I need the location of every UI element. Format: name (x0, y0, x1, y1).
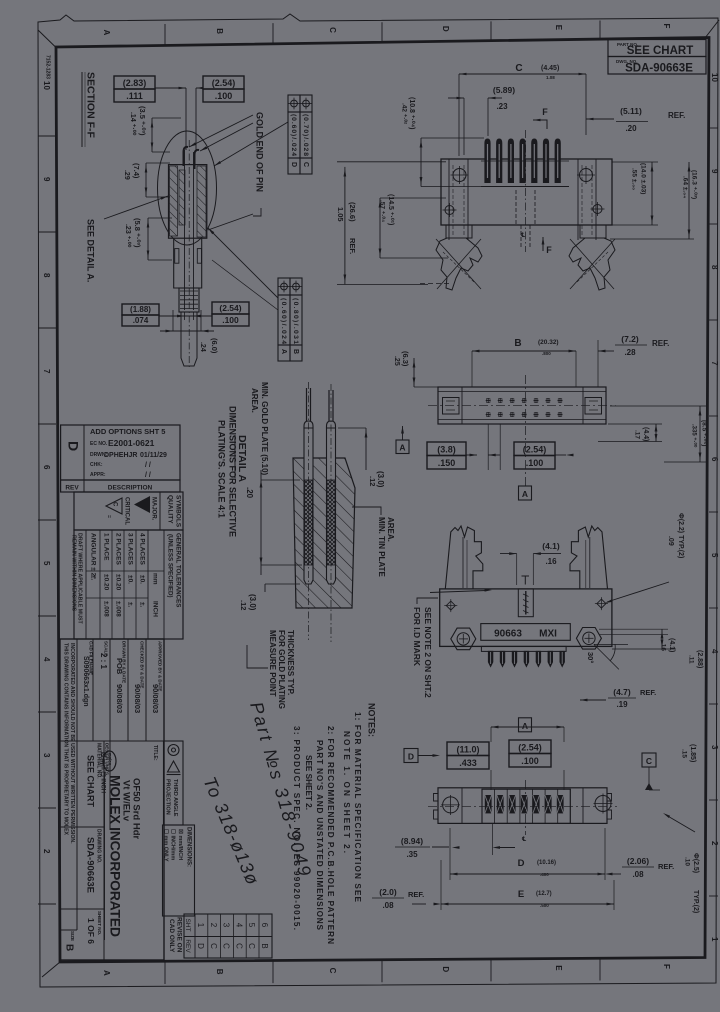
svg-text:.111: .111 (126, 91, 143, 101)
svg-text:D: D (196, 943, 205, 949)
svg-text:(0.70)/.028: (0.70)/.028 (302, 114, 309, 156)
svg-text:1 PLACE: 1 PLACE (102, 533, 109, 561)
svg-text:EC NO.: EC NO. (90, 441, 108, 447)
svg-text:±0.20: ±0.20 (102, 574, 109, 591)
svg-text:(3.5 ⁺·⁰³): (3.5 ⁺·⁰³) (138, 106, 147, 136)
svg-text:B: B (260, 943, 269, 948)
svg-text:MIN. TIN PLATE: MIN. TIN PLATE (377, 517, 386, 578)
svg-text:4: 4 (710, 649, 719, 654)
svg-text:QUALITY: QUALITY (166, 495, 173, 524)
svg-text:C: C (209, 943, 218, 949)
svg-text:REMAIN WITHIN DIMENSIONS: REMAIN WITHIN DIMENSIONS (71, 535, 77, 612)
svg-text:±.008: ±.008 (114, 601, 121, 617)
svg-text:7152-1283: 7152-1283 (45, 55, 51, 79)
svg-text:C: C (302, 162, 309, 167)
svg-text:1: FOR MATERIAL SPECIFICATION: 1: FOR MATERIAL SPECIFICATION SEE (353, 712, 362, 903)
svg-text:SDA-90663E: SDA-90663E (625, 63, 693, 75)
svg-text:SEE SHEET 2.: SEE SHEET 2. (304, 755, 313, 810)
svg-text:B: B (215, 28, 224, 34)
svg-text:POB: POB (115, 658, 124, 675)
svg-text:MEASURE POINT: MEASURE POINT (268, 630, 277, 697)
svg-text:REF.: REF. (640, 688, 656, 697)
svg-text:D: D (408, 752, 414, 762)
svg-text:C: C (646, 756, 652, 766)
svg-text:4: 4 (234, 923, 243, 928)
svg-text:2: 2 (209, 923, 218, 928)
svg-text:MOLEX INCORPORATED: MOLEX INCORPORATED (108, 775, 124, 937)
svg-text:6: 6 (710, 457, 719, 462)
svg-text:THICKNESS TYP.: THICKNESS TYP. (286, 630, 295, 695)
svg-text:.23: .23 (496, 102, 508, 111)
svg-text:(2.0): (2.0) (379, 887, 397, 897)
svg-text:REV: REV (184, 939, 191, 953)
svg-text:PART NO'S AND UNSTATED DIMENSI: PART NO'S AND UNSTATED DIMENSIONS (315, 740, 324, 931)
svg-text:(20.32): (20.32) (538, 339, 559, 346)
svg-text:DESCRIPTION: DESCRIPTION (108, 485, 153, 492)
svg-text:AREA.: AREA. (250, 388, 259, 413)
svg-text:8: 8 (42, 273, 51, 278)
svg-text:.12: .12 (368, 476, 377, 486)
svg-text:(8.94): (8.94) (401, 836, 423, 846)
svg-text:THIRD ANGLE: THIRD ANGLE (172, 779, 178, 817)
svg-text:MXΙ: MXΙ (539, 629, 557, 640)
svg-text:6: 6 (260, 923, 269, 928)
svg-text:☒ mm/INCH: ☒ mm/INCH (177, 829, 184, 860)
svg-text:±0.: ±0. (126, 575, 133, 584)
svg-text:B: B (514, 338, 521, 349)
svg-text:SEE DETAIL A.: SEE DETAIL A. (86, 219, 96, 282)
svg-text:.100: .100 (222, 315, 239, 325)
svg-text:NOTES:: NOTES: (367, 703, 377, 737)
svg-text:/ /: / / (145, 472, 151, 479)
svg-text:C: C (515, 63, 522, 74)
svg-text:1 OF 6: 1 OF 6 (86, 918, 96, 944)
svg-text:.09: .09 (667, 536, 674, 546)
svg-text:FOR I.D MARK: FOR I.D MARK (412, 607, 422, 667)
svg-text:C: C (111, 502, 117, 507)
svg-text:.16: .16 (545, 557, 557, 566)
svg-text:ANGULAR ± 2°: ANGULAR ± 2° (89, 533, 97, 579)
svg-text:SHT: SHT (184, 919, 191, 932)
svg-text:GOLD END OF PIN: GOLD END OF PIN (255, 112, 265, 192)
svg-text:3: 3 (42, 753, 51, 758)
svg-text:(3.8): (3.8) (437, 444, 456, 454)
svg-text:3 PLACES: 3 PLACES (126, 533, 133, 565)
svg-text:2: 2 (710, 841, 719, 846)
svg-text:☐ mm ONLY: ☐ mm ONLY (163, 829, 170, 862)
svg-text:APPR:: APPR: (90, 472, 106, 478)
svg-text:SDA-90663E: SDA-90663E (85, 837, 96, 893)
svg-text:(4.7): (4.7) (613, 687, 631, 697)
svg-text:3: 3 (222, 923, 231, 928)
svg-text:A: A (522, 721, 528, 731)
svg-text:Φ(2.2) TYP.(2): Φ(2.2) TYP.(2) (677, 513, 684, 558)
svg-text:4 PLACES: 4 PLACES (138, 533, 145, 565)
svg-text:REF.: REF. (408, 890, 424, 899)
svg-text:(4.4): (4.4) (642, 427, 649, 441)
svg-text:(26.6): (26.6) (348, 202, 357, 222)
svg-text:C: C (328, 968, 337, 974)
svg-text:ADD OPTIONS SHT 5: ADD OPTIONS SHT 5 (90, 427, 165, 436)
svg-text:10: 10 (42, 81, 51, 90)
svg-text:2 PLACES: 2 PLACES (114, 533, 121, 565)
svg-text:SHEET NO.: SHEET NO. (97, 911, 102, 935)
svg-text:(7.4): (7.4) (132, 163, 141, 179)
svg-text:(5.8 ⁺·⁰³): (5.8 ⁺·⁰³) (133, 218, 142, 248)
svg-text:mm: mm (151, 573, 158, 585)
svg-text:REF.: REF. (348, 238, 357, 254)
svg-text:A: A (102, 30, 111, 36)
svg-text:D: D (518, 858, 525, 869)
svg-text:.42 ⁺·⁰²: .42 ⁺·⁰² (400, 103, 408, 125)
svg-text:TYP.(2): TYP.(2) (692, 890, 699, 913)
svg-text:CHK:: CHK: (90, 462, 103, 468)
svg-text:THIS DRAWING CONTAINS INFORMAT: THIS DRAWING CONTAINS INFORMATION THAT I… (63, 643, 69, 836)
svg-text:PLATING'S. SCALE 4:1: PLATING'S. SCALE 4:1 (217, 420, 227, 518)
svg-text:PROJECTION: PROJECTION (165, 779, 171, 815)
svg-text:90/08/03: 90/08/03 (133, 684, 142, 713)
svg-text:Φ(2.5): Φ(2.5) (692, 853, 699, 873)
svg-text:6: 6 (42, 465, 51, 470)
svg-text:30°: 30° (586, 652, 595, 663)
svg-text:A: A (280, 349, 287, 354)
svg-text:1.08: 1.08 (546, 75, 555, 80)
svg-text:8: 8 (710, 265, 719, 270)
svg-text:F: F (542, 107, 548, 117)
svg-text:CAD ONLY: CAD ONLY (168, 919, 175, 953)
svg-text:9: 9 (42, 177, 51, 182)
svg-text:A: A (102, 970, 111, 976)
svg-text:90/08/03: 90/08/03 (151, 684, 160, 713)
svg-text:(4.1): (4.1) (542, 541, 560, 551)
svg-text:SECTION F-F: SECTION F-F (84, 72, 96, 138)
svg-text:NOTE 1. ON SHEET 2.: NOTE 1. ON SHEET 2. (342, 731, 351, 853)
svg-text:molex: molex (107, 753, 112, 766)
svg-text:.15: .15 (680, 749, 687, 758)
svg-text:SYMBOLS: SYMBOLS (174, 495, 181, 528)
svg-text:(5.11): (5.11) (620, 106, 642, 116)
svg-text:.17: .17 (633, 430, 640, 439)
svg-text:/ /: / / (145, 462, 151, 469)
svg-text:5: 5 (247, 923, 256, 928)
svg-text:±.: ±. (138, 602, 145, 608)
svg-text:.335 ⁺·⁰⁰: .335 ⁺·⁰⁰ (690, 424, 697, 448)
svg-text:.55 ±.₀₀: .55 ±.₀₀ (630, 168, 637, 190)
svg-text:A: A (399, 443, 405, 453)
svg-text:.64 ±.₀₄: .64 ±.₀₄ (681, 176, 688, 198)
svg-text:10: 10 (710, 73, 719, 82)
svg-text:(2.54): (2.54) (212, 78, 236, 88)
svg-text:C: C (222, 943, 231, 949)
svg-text:F: F (546, 245, 552, 255)
svg-text:1: 1 (196, 923, 205, 928)
svg-text:REF.: REF. (658, 862, 674, 871)
svg-text:.12: .12 (239, 600, 248, 610)
svg-text:INCORPORATED AND SHOULD NOT BE: INCORPORATED AND SHOULD NOT BE USED WITH… (69, 643, 75, 844)
svg-text:.20: .20 (245, 487, 254, 499)
svg-text:DRAWING NO.: DRAWING NO. (96, 829, 102, 864)
svg-text:E: E (554, 965, 563, 971)
svg-text:±.: ±. (126, 602, 133, 608)
svg-text:.28: .28 (624, 348, 636, 357)
svg-text:(3.0): (3.0) (248, 594, 257, 611)
svg-text:B: B (63, 944, 74, 951)
svg-text:(7.2): (7.2) (621, 334, 639, 344)
svg-text:REF.: REF. (652, 339, 669, 348)
svg-text:☐ INCH/mm: ☐ INCH/mm (170, 829, 177, 860)
svg-text:DPHEHJR: DPHEHJR (104, 452, 137, 459)
svg-text:±0.: ±0. (138, 575, 145, 584)
svg-text:.20: .20 (625, 124, 637, 133)
svg-text:FOR GOLD PLATING: FOR GOLD PLATING (277, 630, 286, 709)
svg-text:(6.0): (6.0) (210, 338, 219, 354)
svg-text:SIZE: SIZE (70, 931, 75, 941)
svg-text:GENERAL TOLERANCES: GENERAL TOLERANCES (174, 533, 181, 607)
svg-text:±0.20: ±0.20 (114, 574, 121, 591)
svg-text:(0.60)/.024: (0.60)/.024 (280, 298, 287, 344)
svg-text:TITLE:: TITLE: (152, 745, 158, 761)
svg-text:(14.5 ⁺·⁰¹): (14.5 ⁺·⁰¹) (387, 194, 395, 225)
svg-text:DIMENSIONS FOR SELECTIVE: DIMENSIONS FOR SELECTIVE (228, 406, 238, 537)
svg-text:℄: ℄ (520, 232, 525, 239)
svg-text:CHECKED BY & DATE: CHECKED BY & DATE (139, 641, 144, 688)
svg-text:F: F (662, 24, 671, 29)
svg-text:S090663x1.dgn: S090663x1.dgn (82, 656, 89, 707)
svg-text:.23 ⁺·⁰⁰: .23 ⁺·⁰⁰ (124, 224, 132, 248)
svg-text:.19: .19 (616, 700, 628, 709)
svg-text:MIN. GOLD PLATE (5.10): MIN. GOLD PLATE (5.10) (260, 382, 269, 476)
svg-text:(2.54): (2.54) (219, 303, 241, 313)
svg-text:(1.85): (1.85) (689, 744, 696, 762)
svg-text:90/08/03: 90/08/03 (115, 684, 124, 713)
svg-text:(4.1): (4.1) (668, 638, 675, 652)
svg-text:(2.88): (2.88) (696, 650, 703, 668)
svg-text:.100: .100 (521, 756, 539, 766)
svg-text:E: E (554, 25, 563, 31)
svg-text:.25: .25 (393, 356, 400, 366)
svg-text:E: E (518, 889, 524, 900)
svg-text:SEE CHART: SEE CHART (86, 755, 96, 808)
svg-text:(2.54): (2.54) (518, 742, 542, 752)
svg-text:5: 5 (42, 561, 51, 566)
svg-text:C: C (247, 943, 256, 949)
svg-text:.074: .074 (133, 316, 149, 325)
svg-text:INCH: INCH (151, 601, 158, 617)
svg-text:.29: .29 (123, 170, 130, 180)
svg-text:(16.3 ⁺·⁰³): (16.3 ⁺·⁰³) (690, 170, 698, 199)
svg-text:2: 2 (42, 849, 51, 854)
svg-text:90663: 90663 (494, 629, 522, 640)
svg-text:E2001-0621: E2001-0621 (108, 438, 155, 448)
svg-text:DIMENSIONS:: DIMENSIONS: (186, 827, 192, 867)
svg-text:.433: .433 (459, 758, 477, 768)
svg-text:C: C (328, 27, 337, 33)
svg-text:.14 ⁺·⁰⁰: .14 ⁺·⁰⁰ (129, 112, 137, 136)
svg-text:(6.3): (6.3) (401, 351, 410, 367)
svg-text:.11: .11 (687, 655, 694, 664)
svg-text:SEE NOTE 2 ON SHT.2: SEE NOTE 2 ON SHT.2 (423, 607, 433, 698)
svg-text:.16: .16 (659, 642, 666, 651)
svg-text:B: B (292, 349, 299, 354)
svg-text:2: FOR RECOMMENDED P.C.B.HOLE: 2: FOR RECOMMENDED P.C.B.HOLE PATTERN (326, 726, 335, 944)
svg-text:.10: .10 (683, 857, 690, 866)
svg-text:±.008: ±.008 (102, 601, 109, 617)
svg-text:01/11/29: 01/11/29 (140, 452, 167, 459)
svg-text:REV: REV (65, 485, 79, 492)
svg-text:.35: .35 (406, 850, 418, 859)
svg-text:(11.0): (11.0) (456, 744, 479, 754)
svg-text:D: D (65, 441, 81, 451)
svg-text:1.05: 1.05 (336, 207, 345, 222)
svg-text:MAJOR.: MAJOR. (150, 497, 156, 521)
svg-text:REVISE ON: REVISE ON (175, 917, 182, 953)
svg-text:(0.60)/.024: (0.60)/.024 (290, 114, 297, 156)
svg-text:.800: .800 (542, 351, 551, 356)
svg-text:(2.54): (2.54) (523, 444, 547, 454)
svg-text:5: 5 (710, 553, 719, 558)
svg-text:.100: .100 (526, 458, 544, 468)
svg-text:(1.88): (1.88) (130, 305, 151, 314)
svg-text:REF.: REF. (668, 111, 685, 120)
svg-text:SEE CHART: SEE CHART (627, 45, 693, 57)
svg-text:.08: .08 (632, 870, 644, 879)
svg-text:1: 1 (710, 937, 719, 942)
svg-text:B: B (215, 969, 224, 975)
svg-text:.150: .150 (438, 458, 456, 468)
svg-text:.100: .100 (215, 91, 233, 101)
svg-text:(14.0 ±.03): (14.0 ±.03) (639, 163, 646, 194)
svg-text:℄: ℄ (521, 836, 526, 843)
svg-text:AREA.: AREA. (386, 517, 395, 542)
svg-text:4: 4 (42, 657, 51, 662)
svg-text:(4.45): (4.45) (541, 65, 559, 72)
svg-text:(10.8 ⁺·⁰⁴): (10.8 ⁺·⁰⁴) (408, 97, 416, 130)
svg-text:.08: .08 (382, 901, 394, 910)
svg-text:7: 7 (42, 369, 51, 374)
svg-text:9: 9 (710, 169, 719, 174)
svg-text:D: D (441, 26, 450, 32)
svg-text:.24: .24 (199, 342, 206, 352)
svg-text:(2.06): (2.06) (627, 856, 649, 866)
svg-text:(UNLESS SPECIFIED): (UNLESS SPECIFIED) (166, 534, 173, 598)
svg-text:D: D (441, 966, 450, 972)
svg-text:7: 7 (710, 361, 719, 366)
svg-text:(10.16): (10.16) (537, 860, 556, 866)
svg-text:(0.80)/.031: (0.80)/.031 (292, 298, 299, 344)
svg-text:2 : 1: 2 : 1 (99, 653, 108, 670)
svg-text:F: F (662, 964, 671, 969)
svg-text:(5.89): (5.89) (493, 85, 515, 95)
svg-text:(2.83): (2.83) (123, 78, 147, 88)
svg-text:3: 3 (710, 745, 719, 750)
svg-text:±.: ±. (89, 575, 96, 581)
svg-text:C: C (234, 943, 243, 949)
svg-text:(12.7): (12.7) (536, 891, 552, 897)
svg-text:=: = (106, 515, 112, 518)
svg-text:.400: .400 (540, 872, 549, 877)
svg-text:D: D (290, 162, 297, 167)
svg-text:A: A (522, 489, 528, 499)
svg-text:(8.5 ⁺·⁰⁵): (8.5 ⁺·⁰⁵) (700, 420, 708, 446)
svg-text:CRITICAL: CRITICAL (123, 497, 129, 525)
